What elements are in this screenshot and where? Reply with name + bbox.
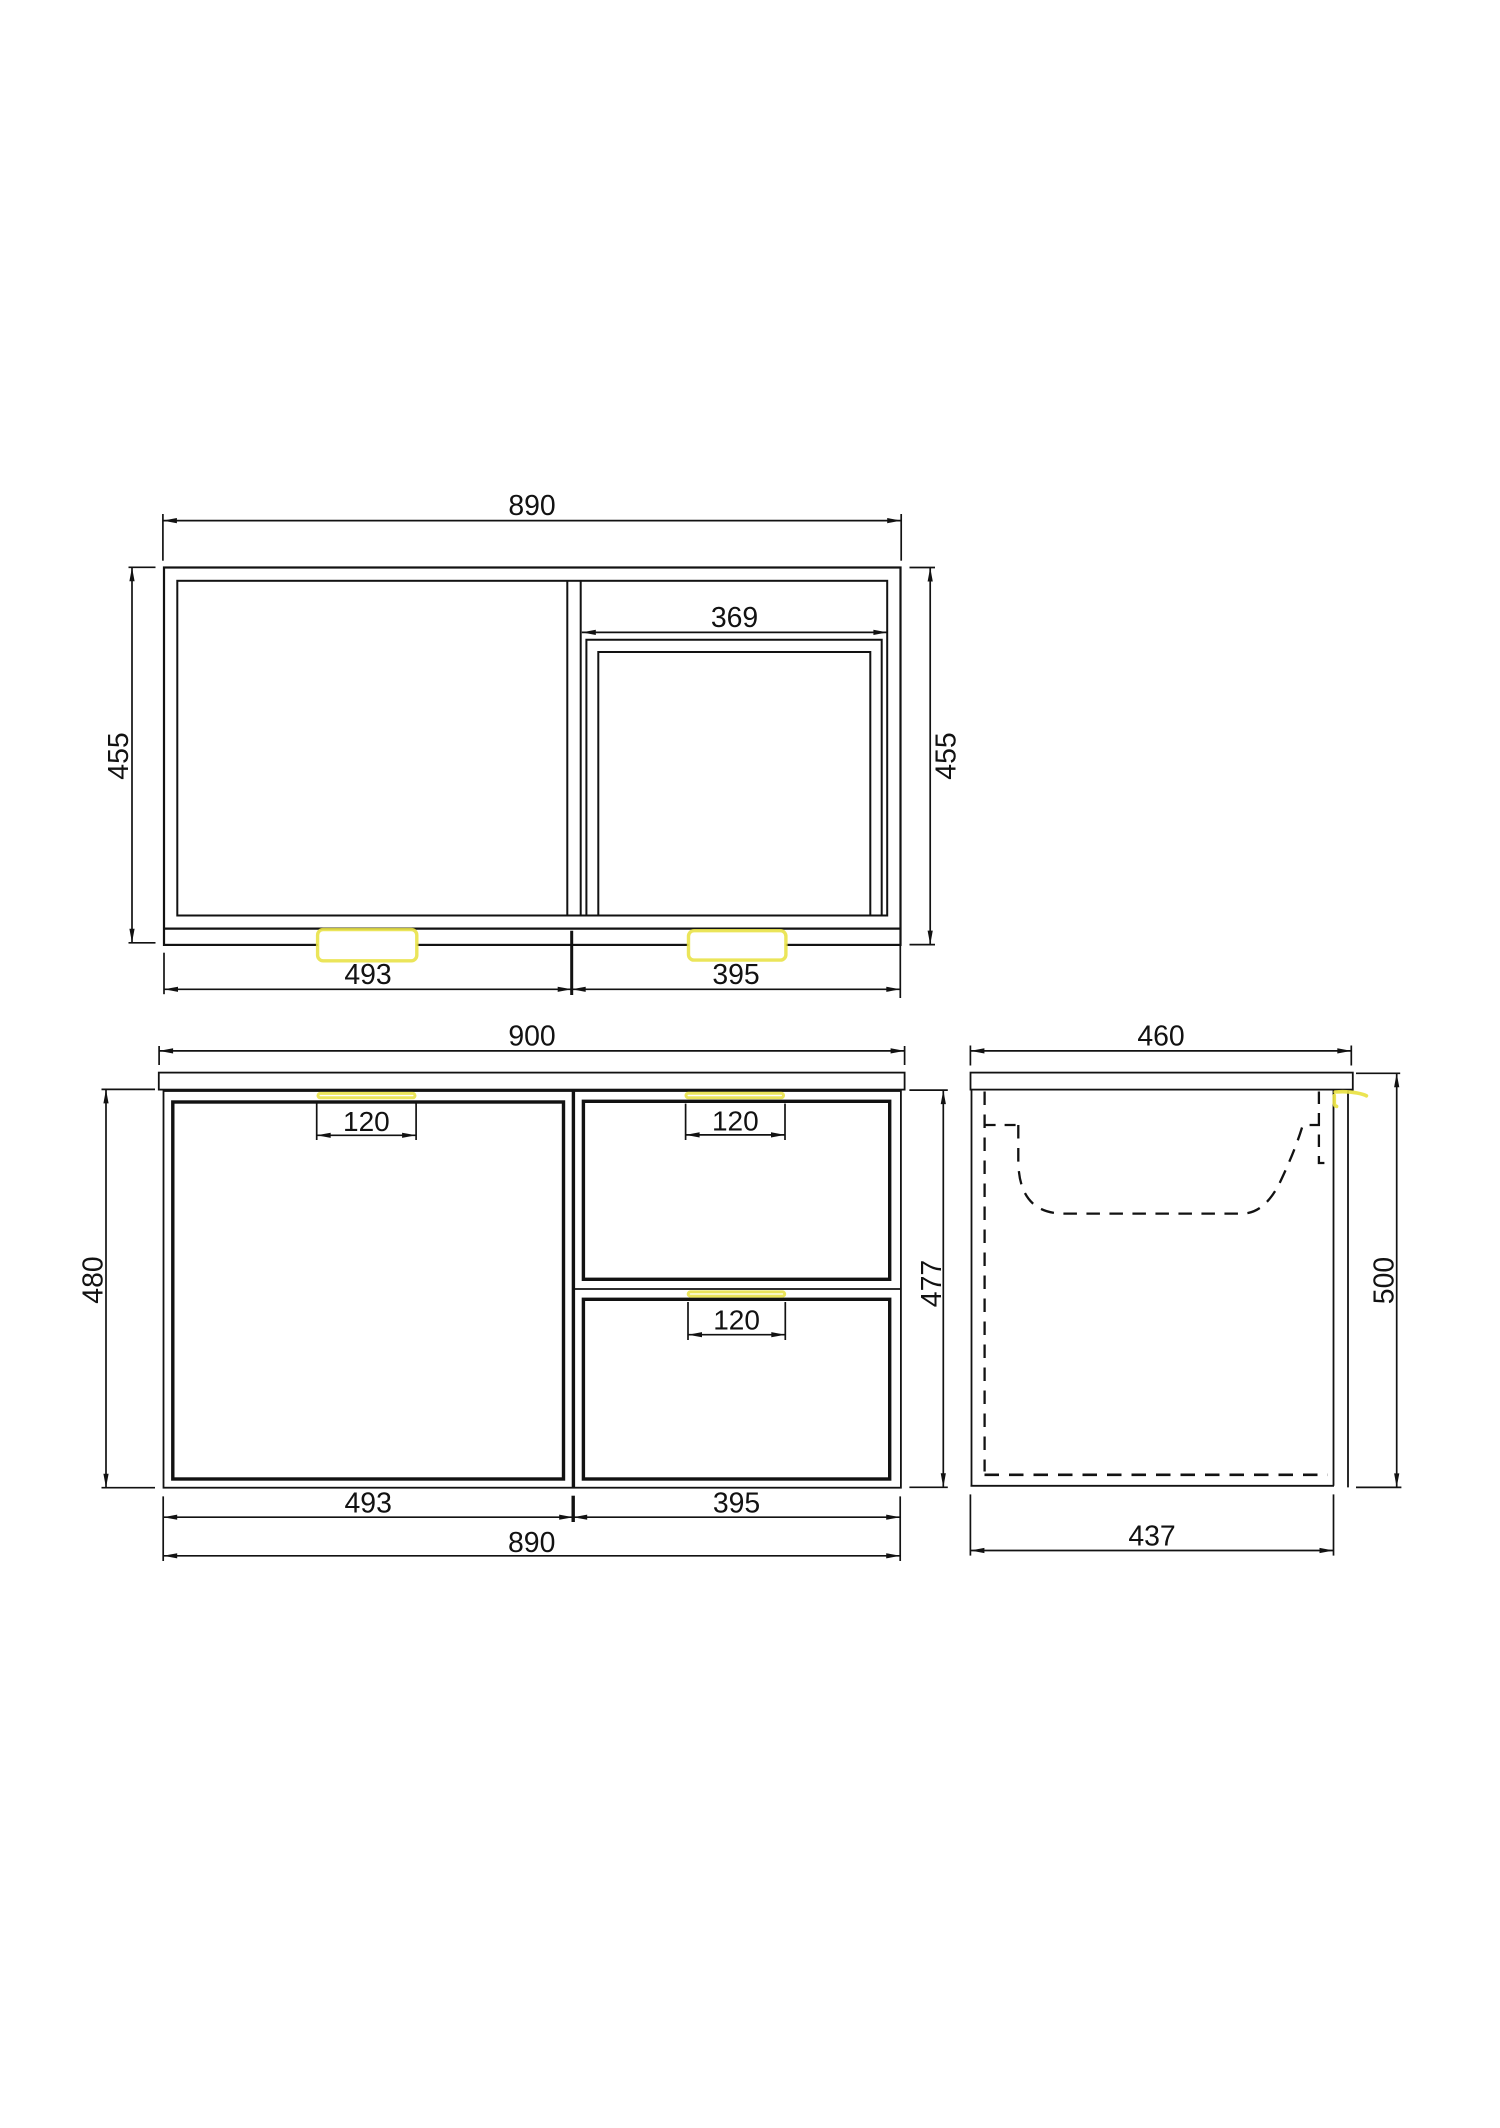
svg-text:455: 455 bbox=[103, 732, 135, 779]
svg-text:460: 460 bbox=[1137, 1021, 1184, 1053]
svg-text:900: 900 bbox=[508, 1021, 555, 1053]
svg-text:395: 395 bbox=[713, 1487, 760, 1519]
svg-text:120: 120 bbox=[712, 1105, 759, 1136]
svg-text:890: 890 bbox=[508, 1527, 555, 1559]
svg-text:369: 369 bbox=[711, 602, 758, 634]
svg-text:477: 477 bbox=[916, 1260, 948, 1307]
svg-text:480: 480 bbox=[78, 1256, 110, 1303]
svg-text:455: 455 bbox=[931, 732, 963, 779]
svg-text:890: 890 bbox=[508, 490, 555, 522]
svg-text:120: 120 bbox=[343, 1106, 390, 1137]
svg-text:437: 437 bbox=[1128, 1521, 1175, 1553]
svg-text:493: 493 bbox=[345, 1488, 392, 1520]
svg-text:395: 395 bbox=[712, 959, 759, 991]
svg-text:120: 120 bbox=[713, 1304, 760, 1335]
svg-text:493: 493 bbox=[344, 959, 391, 991]
svg-text:500: 500 bbox=[1369, 1257, 1401, 1304]
